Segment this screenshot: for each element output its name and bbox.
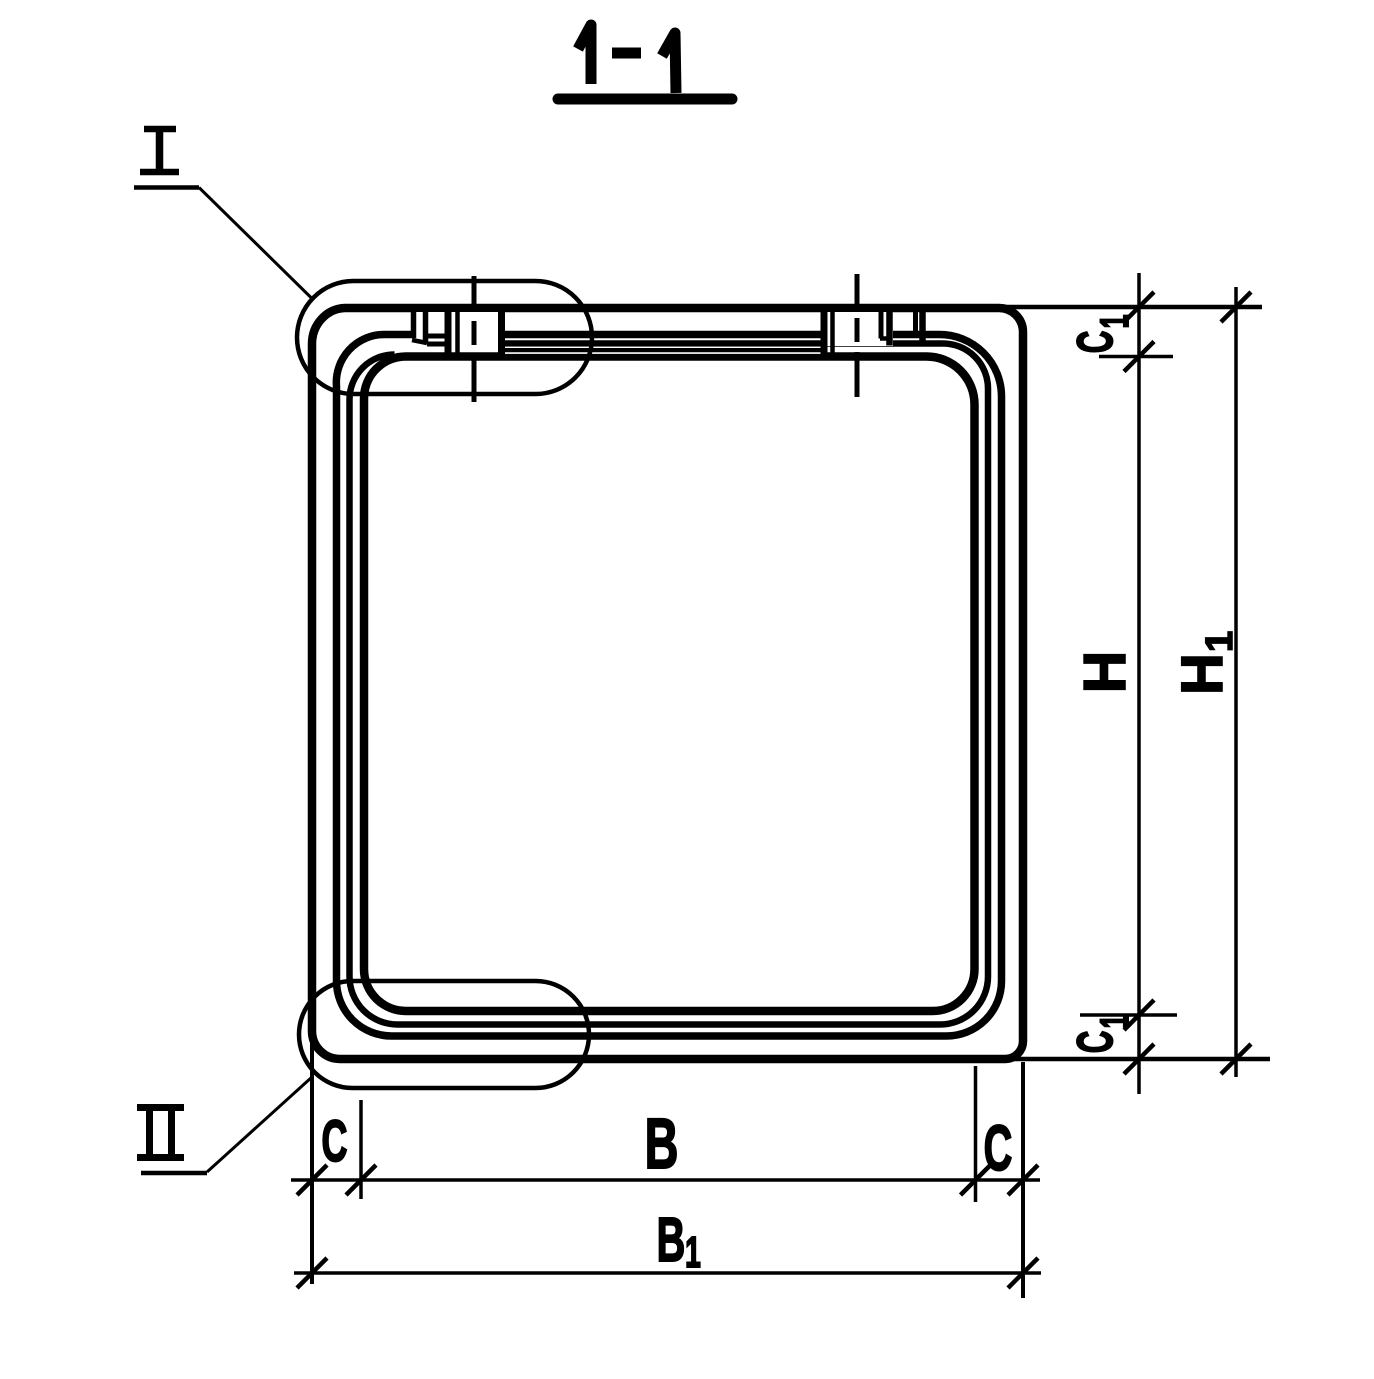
svg-text:C: C xyxy=(984,1114,1013,1185)
svg-text:C: C xyxy=(1066,331,1122,353)
svg-text:1: 1 xyxy=(685,1228,701,1277)
svg-text:1: 1 xyxy=(1199,631,1241,652)
svg-text:1: 1 xyxy=(1093,1015,1137,1029)
svg-text:B: B xyxy=(645,1104,679,1183)
svg-text:1: 1 xyxy=(1093,315,1137,329)
svg-text:C: C xyxy=(322,1109,348,1174)
svg-text:B: B xyxy=(657,1206,686,1275)
svg-text:C: C xyxy=(1066,1031,1122,1053)
svg-text:H: H xyxy=(1170,653,1235,695)
svg-text:H: H xyxy=(1072,651,1138,694)
